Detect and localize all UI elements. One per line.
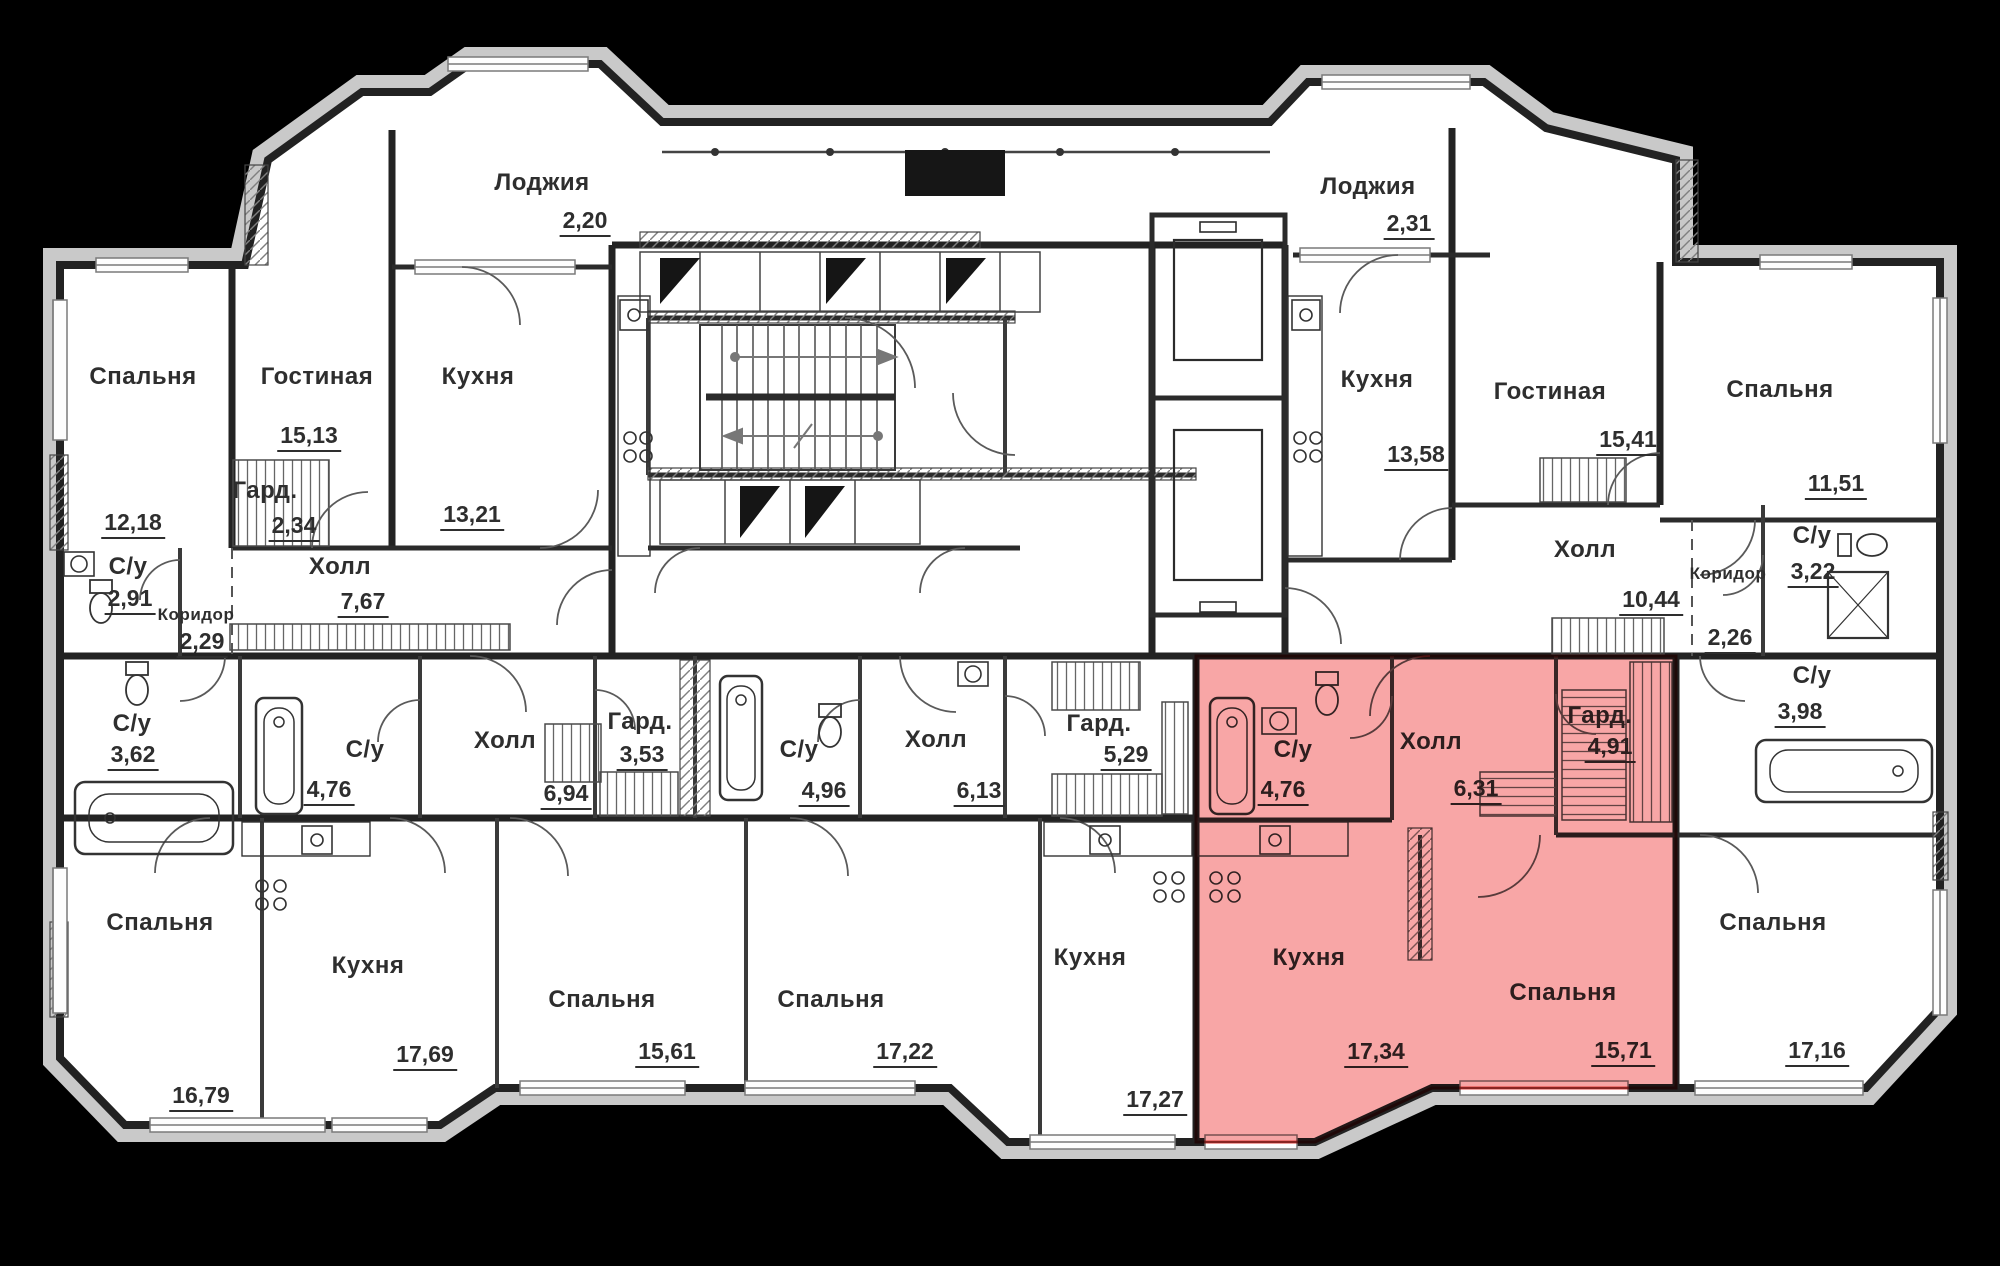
floor-plan: Лоджия 2,20 Спальня 12,18 Гостиная 15,13…: [0, 0, 2000, 1266]
selected-apartment-overlay[interactable]: [0, 0, 2000, 1266]
